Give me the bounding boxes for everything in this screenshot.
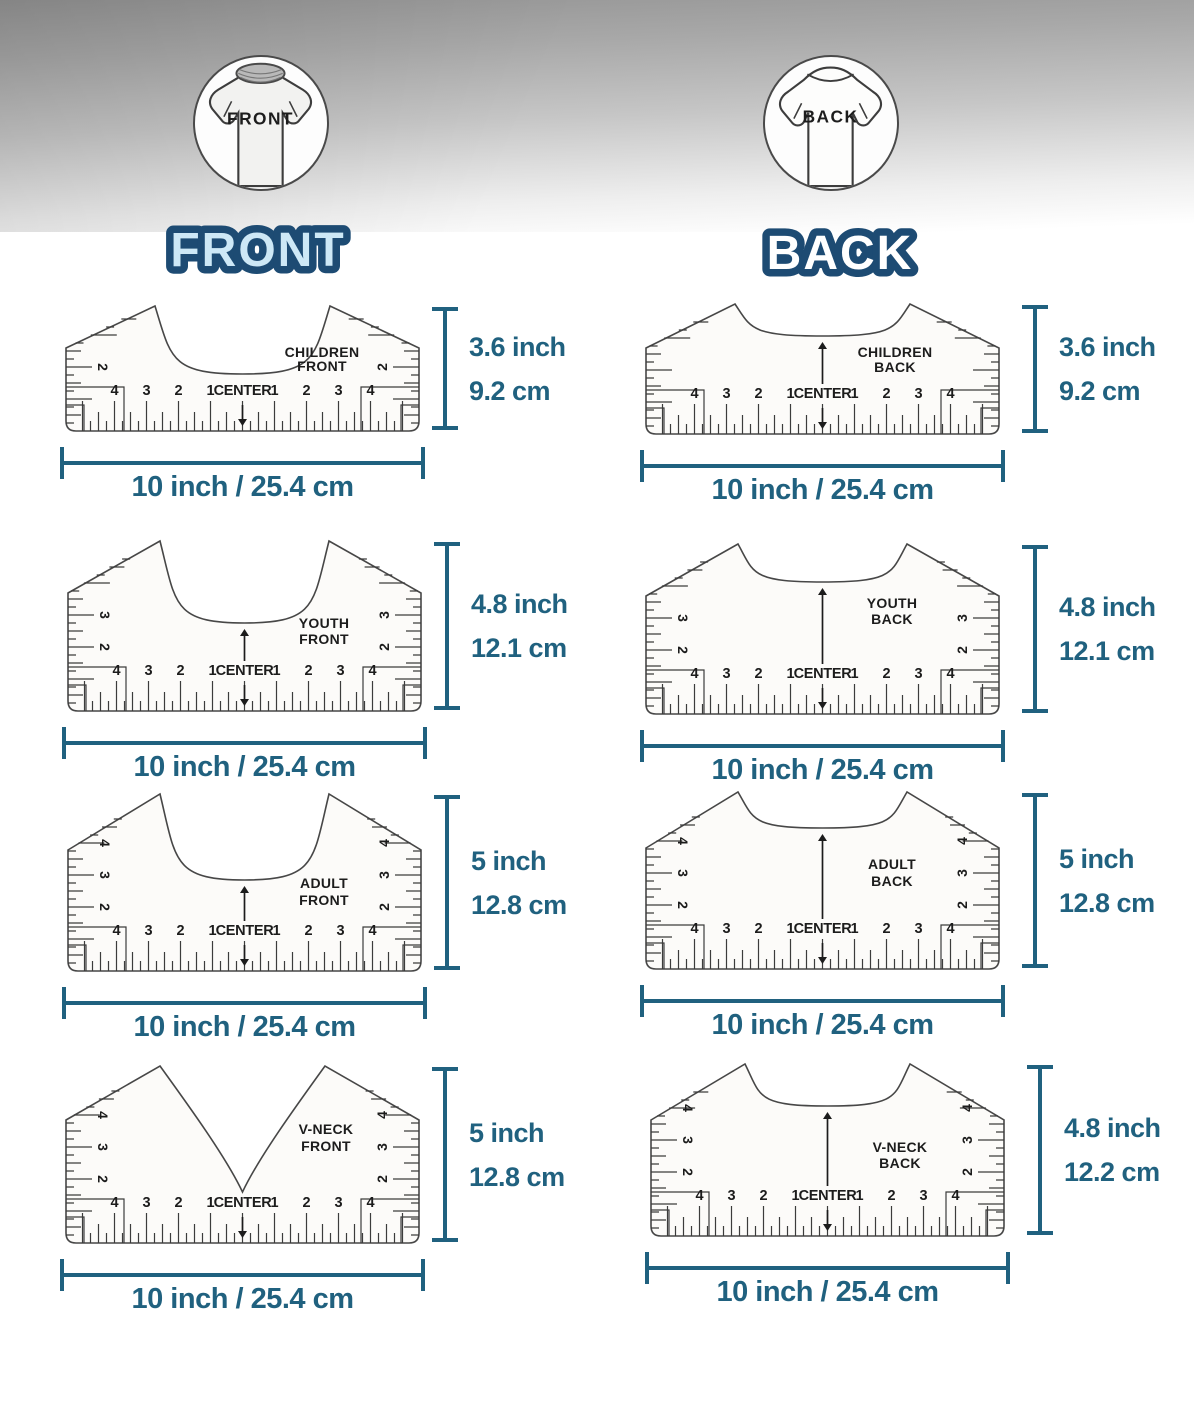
side-number: 3 — [376, 611, 392, 619]
ruler-name-line2: BACK — [871, 873, 913, 889]
front-column-title: FRONT — [148, 210, 368, 288]
side-number: 2 — [675, 646, 691, 654]
bottom-number: 4 — [690, 386, 698, 402]
width-dimension-line — [642, 464, 1003, 468]
bottom-number: 4 — [366, 383, 374, 399]
ruler-name-line2: BACK — [879, 1155, 921, 1171]
side-number: 2 — [680, 1168, 696, 1176]
height-dimension-line — [1033, 795, 1037, 966]
bottom-number: 4 — [110, 1195, 118, 1211]
side-number: 3 — [954, 869, 970, 877]
ruler-name-line1: CHILDREN — [858, 344, 933, 360]
bottom-number: 4 — [946, 386, 954, 402]
width-dimension-label: 10 inch / 25.4 cm — [62, 1011, 427, 1044]
bottom-number: 3 — [336, 663, 344, 679]
width-dimension-label: 10 inch / 25.4 cm — [640, 474, 1005, 507]
ruler-name-line1: YOUTH — [299, 615, 350, 631]
back-shirt-drawing: BACK — [765, 57, 896, 188]
height-dimension-labels: 4.8 inch12.2 cm — [1064, 1114, 1161, 1187]
side-number: 4 — [675, 837, 691, 845]
bottom-number: 4 — [690, 921, 698, 937]
side-number: 2 — [374, 1175, 390, 1183]
bottom-number: 1 — [855, 1188, 863, 1204]
height-dimension-line — [1033, 547, 1037, 711]
center-label: CENTER — [794, 386, 853, 402]
side-number: 4 — [376, 839, 392, 847]
ruler-name-line1: ADULT — [300, 875, 348, 891]
bottom-number: 3 — [142, 383, 150, 399]
bottom-number: 1 — [272, 923, 280, 939]
center-label: CENTER — [214, 383, 273, 399]
bottom-number: 2 — [174, 383, 182, 399]
height-cm-label: 9.2 cm — [1059, 377, 1156, 407]
bottom-number: 4 — [112, 923, 120, 939]
ruler-name-line2: FRONT — [297, 358, 347, 374]
center-label: CENTER — [799, 1188, 858, 1204]
center-label: CENTER — [794, 666, 853, 682]
width-dimension-label: 10 inch / 25.4 cm — [645, 1276, 1010, 1309]
bottom-number: 4 — [946, 921, 954, 937]
adult-front-template: 43211234CENTER443322ADULTFRONT — [62, 790, 427, 975]
height-cm-label: 12.8 cm — [1059, 889, 1155, 919]
bottom-number: 4 — [112, 663, 120, 679]
side-number: 4 — [954, 837, 970, 845]
vneck-front-template: 43211234CENTER443322V-NECKFRONT — [60, 1062, 425, 1247]
side-number: 4 — [374, 1111, 390, 1119]
side-number: 2 — [97, 643, 113, 651]
ruler-name-line1: V-NECK — [873, 1139, 928, 1155]
bottom-number: 4 — [946, 666, 954, 682]
back-badge-label: BACK — [803, 107, 859, 127]
youth-back-template: 43211234CENTER3322YOUTHBACK — [640, 540, 1005, 718]
height-cm-label: 12.8 cm — [471, 891, 567, 921]
bottom-number: 4 — [368, 663, 376, 679]
front-shirt-drawing: FRONT — [195, 57, 326, 188]
side-number: 2 — [959, 1168, 975, 1176]
front-title-text: FRONT — [170, 224, 345, 277]
bottom-number: 1 — [850, 921, 858, 937]
width-dimension-label: 10 inch / 25.4 cm — [60, 1283, 425, 1316]
height-cm-label: 12.2 cm — [1064, 1158, 1161, 1188]
height-dimension-line — [1038, 1067, 1042, 1233]
side-number: 3 — [954, 614, 970, 622]
width-dimension-label: 10 inch / 25.4 cm — [640, 754, 1005, 787]
side-number: 2 — [374, 363, 390, 371]
bottom-number: 3 — [334, 383, 342, 399]
bottom-number: 1 — [850, 386, 858, 402]
children-back-template: 43211234CENTERCHILDRENBACK — [640, 300, 1005, 438]
height-dimension-line — [445, 797, 449, 968]
bottom-number: 2 — [882, 666, 890, 682]
bottom-number: 2 — [302, 1195, 310, 1211]
bottom-number: 1 — [270, 1195, 278, 1211]
width-dimension-line — [62, 1273, 423, 1277]
side-number: 2 — [954, 646, 970, 654]
center-label: CENTER — [214, 1195, 273, 1211]
bottom-number: 3 — [334, 1195, 342, 1211]
height-dimension-line — [443, 309, 447, 428]
width-dimension-label: 10 inch / 25.4 cm — [62, 751, 427, 784]
height-dimension-labels: 4.8 inch12.1 cm — [1059, 593, 1156, 666]
side-number: 3 — [675, 614, 691, 622]
bottom-number: 2 — [754, 666, 762, 682]
width-dimension-line — [642, 744, 1003, 748]
bottom-number: 4 — [110, 383, 118, 399]
height-dimension-labels: 4.8 inch12.1 cm — [471, 590, 568, 663]
bottom-number: 2 — [176, 923, 184, 939]
side-number: 3 — [675, 869, 691, 877]
bottom-number: 3 — [914, 666, 922, 682]
front-badge-label: FRONT — [227, 108, 294, 128]
width-dimension-line — [64, 1001, 425, 1005]
bottom-number: 1 — [850, 666, 858, 682]
bottom-number: 4 — [695, 1188, 703, 1204]
side-number: 4 — [97, 839, 113, 847]
back-title-text: BACK — [767, 227, 914, 280]
side-number: 3 — [97, 611, 113, 619]
height-dimension-line — [445, 544, 449, 708]
side-number: 2 — [95, 1175, 111, 1183]
bottom-number: 2 — [754, 921, 762, 937]
tshirt-ruler-guide: FRONT BACK FRONT BACK 43211234CENTER22CH… — [0, 0, 1194, 1417]
center-label: CENTER — [794, 921, 853, 937]
side-number: 3 — [680, 1136, 696, 1144]
bottom-number: 3 — [142, 1195, 150, 1211]
side-number: 3 — [959, 1136, 975, 1144]
height-inches-label: 5 inch — [1059, 845, 1155, 875]
side-number: 3 — [95, 1143, 111, 1151]
height-inches-label: 5 inch — [471, 847, 567, 877]
bottom-number: 4 — [366, 1195, 374, 1211]
width-dimension-label: 10 inch / 25.4 cm — [60, 471, 425, 504]
back-shirt-illustration: BACK — [763, 55, 899, 191]
width-dimension-line — [62, 461, 423, 465]
bottom-number: 1 — [270, 383, 278, 399]
height-cm-label: 9.2 cm — [469, 377, 566, 407]
bottom-number: 2 — [304, 663, 312, 679]
bottom-number: 4 — [368, 923, 376, 939]
bottom-number: 2 — [754, 386, 762, 402]
height-dimension-labels: 5 inch12.8 cm — [471, 847, 567, 920]
side-number: 4 — [680, 1104, 696, 1112]
height-dimension-line — [1033, 307, 1037, 431]
side-number: 4 — [95, 1111, 111, 1119]
front-shirt-illustration: FRONT — [193, 55, 329, 191]
center-label: CENTER — [216, 923, 275, 939]
bottom-number: 2 — [759, 1188, 767, 1204]
height-inches-label: 4.8 inch — [1059, 593, 1156, 623]
side-number: 2 — [376, 903, 392, 911]
height-inches-label: 3.6 inch — [1059, 333, 1156, 363]
width-dimension-line — [64, 741, 425, 745]
height-inches-label: 4.8 inch — [471, 590, 568, 620]
ruler-name-line2: FRONT — [299, 892, 349, 908]
height-inches-label: 5 inch — [469, 1119, 565, 1149]
bottom-number: 3 — [722, 386, 730, 402]
adult-back-template: 43211234CENTER443322ADULTBACK — [640, 788, 1005, 973]
ruler-name-line2: FRONT — [299, 631, 349, 647]
side-number: 2 — [675, 901, 691, 909]
bottom-number: 3 — [722, 921, 730, 937]
height-inches-label: 3.6 inch — [469, 333, 566, 363]
height-dimension-line — [443, 1069, 447, 1240]
side-number: 4 — [959, 1104, 975, 1112]
bottom-number: 3 — [144, 663, 152, 679]
height-dimension-labels: 5 inch12.8 cm — [1059, 845, 1155, 918]
height-dimension-labels: 5 inch12.8 cm — [469, 1119, 565, 1192]
height-cm-label: 12.1 cm — [1059, 637, 1156, 667]
height-cm-label: 12.8 cm — [469, 1163, 565, 1193]
bottom-number: 4 — [951, 1188, 959, 1204]
bottom-number: 3 — [919, 1188, 927, 1204]
youth-front-template: 43211234CENTER3322YOUTHFRONT — [62, 537, 427, 715]
center-label: CENTER — [216, 663, 275, 679]
width-dimension-label: 10 inch / 25.4 cm — [640, 1009, 1005, 1042]
bottom-number: 2 — [174, 1195, 182, 1211]
width-dimension-line — [642, 999, 1003, 1003]
bottom-number: 2 — [302, 383, 310, 399]
side-number: 2 — [97, 903, 113, 911]
ruler-name-line2: BACK — [871, 611, 913, 627]
width-dimension-line — [647, 1266, 1008, 1270]
bottom-number: 2 — [176, 663, 184, 679]
bottom-number: 1 — [272, 663, 280, 679]
bottom-number: 2 — [882, 921, 890, 937]
bottom-number: 3 — [722, 666, 730, 682]
side-number: 3 — [374, 1143, 390, 1151]
bottom-number: 3 — [336, 923, 344, 939]
bottom-number: 2 — [887, 1188, 895, 1204]
ruler-name-line1: YOUTH — [867, 595, 918, 611]
height-dimension-labels: 3.6 inch9.2 cm — [469, 333, 566, 406]
side-number: 2 — [95, 363, 111, 371]
back-column-title: BACK — [745, 213, 935, 291]
height-dimension-labels: 3.6 inch9.2 cm — [1059, 333, 1156, 406]
ruler-name-line1: ADULT — [868, 856, 916, 872]
back-shirt-body — [780, 68, 881, 186]
side-number: 3 — [97, 871, 113, 879]
side-number: 2 — [376, 643, 392, 651]
children-front-template: 43211234CENTER22CHILDRENFRONT — [60, 302, 425, 435]
bottom-number: 3 — [727, 1188, 735, 1204]
ruler-name-line2: BACK — [874, 359, 916, 375]
header-gradient-corner — [0, 0, 1194, 232]
bottom-number: 4 — [690, 666, 698, 682]
bottom-number: 3 — [914, 921, 922, 937]
ruler-name-line1: V-NECK — [299, 1121, 354, 1137]
bottom-number: 2 — [882, 386, 890, 402]
vneck-back-template: 43211234CENTER443322V-NECKBACK — [645, 1060, 1010, 1240]
ruler-name-line2: FRONT — [301, 1138, 351, 1154]
height-inches-label: 4.8 inch — [1064, 1114, 1161, 1144]
side-number: 2 — [954, 901, 970, 909]
bottom-number: 2 — [304, 923, 312, 939]
side-number: 3 — [376, 871, 392, 879]
bottom-number: 3 — [914, 386, 922, 402]
bottom-number: 3 — [144, 923, 152, 939]
height-cm-label: 12.1 cm — [471, 634, 568, 664]
